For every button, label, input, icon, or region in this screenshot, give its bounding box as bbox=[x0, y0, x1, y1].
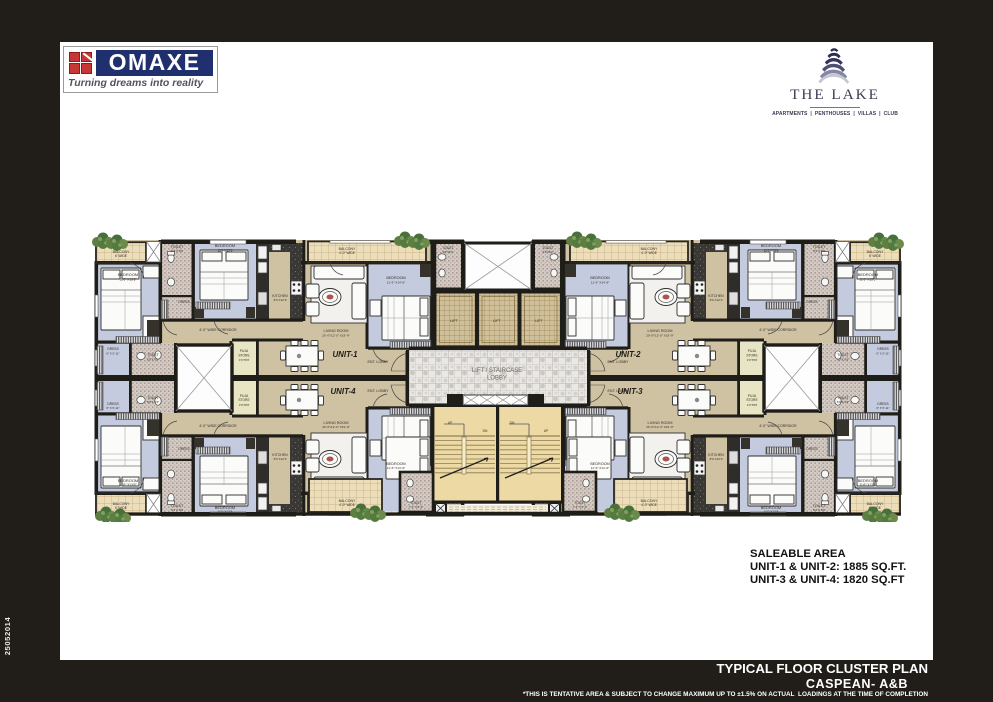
svg-text:6″ X 5’-11″: 6″ X 5’-11″ bbox=[876, 352, 889, 356]
svg-text:5’3 X 8’9: 5’3 X 8’9 bbox=[171, 508, 183, 512]
svg-text:6″ X 5’-11″: 6″ X 5’-11″ bbox=[876, 406, 889, 410]
svg-text:5’3 X 8’9: 5’3 X 8’9 bbox=[813, 249, 825, 253]
svg-text:BEDROOM: BEDROOM bbox=[386, 276, 405, 280]
svg-text:11’6″ X13’6″: 11’6″ X13’6″ bbox=[859, 483, 877, 487]
svg-text:DN: DN bbox=[510, 421, 515, 425]
svg-text:4’0″X5’8: 4’0″X5’8 bbox=[747, 358, 758, 362]
svg-text:UNIT-3: UNIT-3 bbox=[617, 387, 643, 396]
svg-text:5’3 X 8’9: 5’3 X 8’9 bbox=[171, 249, 183, 253]
svg-text:11’6″ X13’6″: 11’6″ X13’6″ bbox=[119, 278, 137, 282]
svg-text:4’-0″ WIDE CORRIDOR: 4’-0″ WIDE CORRIDOR bbox=[199, 424, 237, 428]
svg-text:DN: DN bbox=[483, 429, 488, 433]
svg-text:4’0″X5’8: 4’0″X5’8 bbox=[239, 358, 250, 362]
svg-text:LIFT: LIFT bbox=[493, 319, 501, 323]
svg-text:LIVING ROOM: LIVING ROOM bbox=[648, 329, 673, 333]
svg-text:TOILET: TOILET bbox=[410, 501, 421, 505]
svg-text:LIFT / STAIRCASE: LIFT / STAIRCASE bbox=[472, 368, 522, 374]
svg-text:BEDROOM: BEDROOM bbox=[761, 243, 781, 248]
svg-text:6’0″X 6’6″: 6’0″X 6’6″ bbox=[147, 358, 159, 362]
svg-text:6’ WIDE: 6’ WIDE bbox=[115, 254, 128, 258]
svg-text:4’-0″ WIDE: 4’-0″ WIDE bbox=[339, 251, 355, 255]
svg-text:6″ X 5’-11″: 6″ X 5’-11″ bbox=[106, 352, 119, 356]
svg-text:DRESS: DRESS bbox=[178, 300, 190, 304]
svg-text:11’0 X13’6: 11’0 X13’6 bbox=[764, 510, 779, 514]
svg-text:STORE: STORE bbox=[746, 354, 758, 358]
svg-text:TOILET: TOILET bbox=[147, 353, 158, 357]
svg-text:11’-6″ X14’-6″: 11’-6″ X14’-6″ bbox=[591, 466, 610, 470]
svg-text:UP: UP bbox=[544, 429, 549, 433]
svg-text:6’ WIDE: 6’ WIDE bbox=[869, 254, 882, 258]
svg-text:8’0 X12’9: 8’0 X12’9 bbox=[274, 457, 287, 461]
svg-text:11’6″ X13’6″: 11’6″ X13’6″ bbox=[119, 483, 137, 487]
svg-text:DRESS: DRESS bbox=[806, 300, 818, 304]
svg-text:8’0 X12’9: 8’0 X12’9 bbox=[274, 298, 287, 302]
svg-text:6’0″X 6’6″: 6’0″X 6’6″ bbox=[837, 400, 849, 404]
svg-text:ENT. LOBBY: ENT. LOBBY bbox=[368, 389, 390, 393]
svg-text:4’0″X5’8: 4’0″X5’8 bbox=[747, 403, 758, 407]
svg-text:4’-0″ WIDE: 4’-0″ WIDE bbox=[641, 503, 657, 507]
svg-text:LIFT: LIFT bbox=[535, 319, 543, 323]
svg-text:8’0 X12’9: 8’0 X12’9 bbox=[710, 457, 723, 461]
svg-text:11’-6″ X14’-6″: 11’-6″ X14’-6″ bbox=[387, 466, 406, 470]
svg-text:LIVING ROOM: LIVING ROOM bbox=[324, 329, 349, 333]
svg-text:11’0 X13’6: 11’0 X13’6 bbox=[764, 249, 779, 253]
svg-text:11’0 X13’6: 11’0 X13’6 bbox=[218, 510, 233, 514]
svg-text:BEDROOM: BEDROOM bbox=[858, 272, 878, 277]
svg-text:4’-0″ WIDE: 4’-0″ WIDE bbox=[339, 503, 355, 507]
svg-text:UP: UP bbox=[448, 421, 453, 425]
svg-text:TOILET: TOILET bbox=[837, 353, 848, 357]
svg-text:6″ X 5’-11″: 6″ X 5’-11″ bbox=[106, 406, 119, 410]
svg-text:7’-4″ X 5’-0″: 7’-4″ X 5’-0″ bbox=[573, 505, 588, 509]
svg-text:BEDROOM: BEDROOM bbox=[590, 276, 609, 280]
svg-text:8’0 X12’9: 8’0 X12’9 bbox=[710, 298, 723, 302]
svg-text:UNIT-2: UNIT-2 bbox=[615, 350, 641, 359]
svg-text:7’-4″ X 5’-0″: 7’-4″ X 5’-0″ bbox=[409, 505, 424, 509]
svg-text:TOILET: TOILET bbox=[442, 246, 453, 250]
svg-text:5’3 X 8’9: 5’3 X 8’9 bbox=[813, 508, 825, 512]
svg-text:5’3″X6’4″: 5’3″X6’4″ bbox=[542, 250, 553, 254]
svg-text:20’-0″/12’-0″ X19’-9″: 20’-0″/12’-0″ X19’-9″ bbox=[322, 334, 350, 338]
svg-text:4’0″X5’8: 4’0″X5’8 bbox=[239, 403, 250, 407]
svg-text:11’6″ X13’6″: 11’6″ X13’6″ bbox=[859, 278, 877, 282]
svg-text:UNIT-4: UNIT-4 bbox=[330, 387, 356, 396]
svg-text:4’-0″ WIDE: 4’-0″ WIDE bbox=[641, 251, 657, 255]
svg-text:BEDROOM: BEDROOM bbox=[215, 243, 235, 248]
svg-text:20’-0″/12’-0″ X19’-9″: 20’-0″/12’-0″ X19’-9″ bbox=[646, 425, 674, 429]
svg-text:6’0″X 6’6″: 6’0″X 6’6″ bbox=[837, 358, 849, 362]
svg-text:DRESS: DRESS bbox=[877, 347, 889, 351]
svg-text:20’-0″/12’-0″ X19’-9″: 20’-0″/12’-0″ X19’-9″ bbox=[646, 334, 674, 338]
svg-text:STORE: STORE bbox=[238, 354, 250, 358]
svg-text:DRESS: DRESS bbox=[178, 447, 190, 451]
svg-text:5’3″X6’4″: 5’3″X6’4″ bbox=[442, 250, 453, 254]
svg-text:LOBBY: LOBBY bbox=[487, 376, 507, 382]
svg-text:PUJA: PUJA bbox=[240, 349, 249, 353]
svg-text:BEDROOM: BEDROOM bbox=[118, 272, 138, 277]
svg-text:11’-6″ X14’-6″: 11’-6″ X14’-6″ bbox=[387, 281, 406, 285]
svg-text:4’-0″ WIDE CORRIDOR: 4’-0″ WIDE CORRIDOR bbox=[199, 328, 237, 332]
svg-text:DRESS: DRESS bbox=[806, 447, 818, 451]
svg-text:STORE: STORE bbox=[238, 398, 250, 402]
svg-text:STORE: STORE bbox=[746, 398, 758, 402]
svg-text:11’0 X13’6: 11’0 X13’6 bbox=[218, 249, 233, 253]
svg-text:TOILET: TOILET bbox=[574, 501, 585, 505]
svg-text:DRESS: DRESS bbox=[107, 347, 119, 351]
svg-text:20’-0″/12’-0″ X19’-9″: 20’-0″/12’-0″ X19’-9″ bbox=[322, 425, 350, 429]
svg-text:LIFT: LIFT bbox=[450, 319, 458, 323]
svg-text:ENT. LOBBY: ENT. LOBBY bbox=[608, 360, 630, 364]
svg-text:6’0″X 6’6″: 6’0″X 6’6″ bbox=[147, 400, 159, 404]
svg-text:ENT. LOBBY: ENT. LOBBY bbox=[368, 360, 390, 364]
svg-text:PUJA: PUJA bbox=[748, 349, 757, 353]
svg-text:11’-6″ X14’-6″: 11’-6″ X14’-6″ bbox=[591, 281, 610, 285]
svg-text:UNIT-1: UNIT-1 bbox=[332, 350, 357, 359]
svg-text:TOILET: TOILET bbox=[542, 246, 553, 250]
svg-text:4’-0″ WIDE CORRIDOR: 4’-0″ WIDE CORRIDOR bbox=[759, 328, 797, 332]
svg-text:4’-0″ WIDE CORRIDOR: 4’-0″ WIDE CORRIDOR bbox=[759, 424, 797, 428]
